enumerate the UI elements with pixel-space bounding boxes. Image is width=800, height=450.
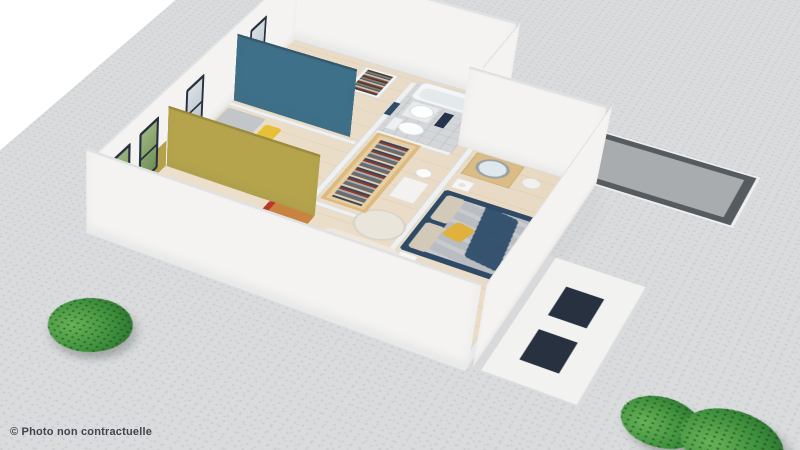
lamp — [457, 182, 467, 188]
floor-plan-render: © Photo non contractuelle — [0, 0, 800, 450]
dark-window — [519, 329, 577, 373]
dark-window — [548, 287, 604, 329]
copyright-watermark: © Photo non contractuelle — [10, 426, 152, 438]
